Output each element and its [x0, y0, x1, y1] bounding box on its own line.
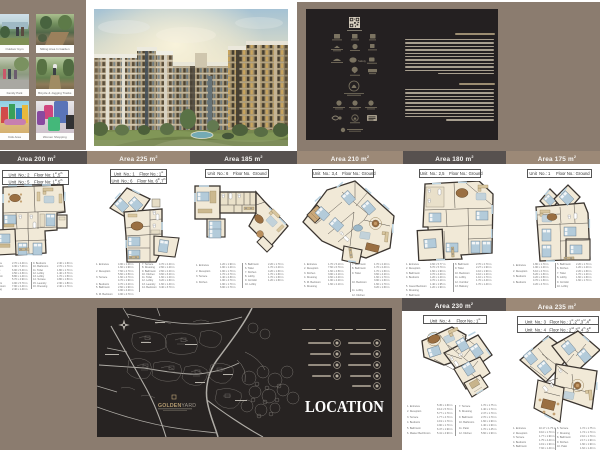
- svg-text:Safety: Safety: [358, 59, 367, 63]
- svg-text:GOLDENYARD: GOLDENYARD: [158, 403, 196, 409]
